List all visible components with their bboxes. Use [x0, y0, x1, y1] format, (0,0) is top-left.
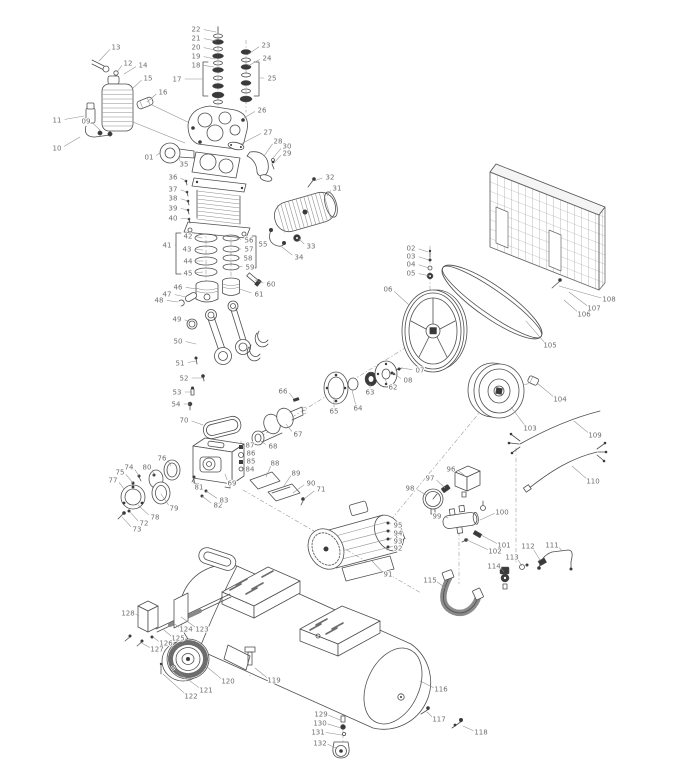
- part-number-29: 29: [283, 149, 292, 157]
- leader-line-12: [117, 66, 122, 72]
- leader-line-06: [394, 291, 409, 305]
- part-number-97: 97: [426, 474, 435, 482]
- motor-pulley: [468, 363, 539, 418]
- piston-small: [223, 278, 240, 296]
- part-number-89: 89: [292, 469, 301, 477]
- leader-line-118: [463, 726, 473, 731]
- part-number-07: 07: [416, 366, 425, 374]
- part-number-129: 129: [314, 710, 327, 718]
- part-number-117: 117: [432, 715, 445, 723]
- part-number-131: 131: [311, 728, 324, 736]
- leader-line-77: [119, 483, 124, 489]
- leader-line-75: [126, 475, 133, 483]
- leader-line-03: [419, 257, 429, 260]
- part-number-27: 27: [264, 128, 273, 136]
- piston-hardware: [179, 272, 262, 329]
- part-number-118: 118: [474, 728, 487, 736]
- part-number-21: 21: [192, 34, 201, 42]
- part-number-28: 28: [274, 137, 283, 145]
- leader-line-106: [564, 300, 577, 312]
- part-number-103: 103: [523, 424, 536, 432]
- leader-line-18: [204, 65, 214, 67]
- part-number-78: 78: [151, 513, 160, 521]
- leader-line-109: [574, 421, 588, 433]
- part-number-102: 102: [488, 547, 501, 555]
- part-number-112: 112: [521, 542, 534, 550]
- part-number-57: 57: [245, 245, 254, 253]
- part-number-26: 26: [258, 106, 267, 114]
- part-number-58: 58: [244, 254, 253, 262]
- leader-line-103: [511, 407, 525, 425]
- diagram-artwork: 0102030405060708091011121314151617181920…: [0, 0, 686, 768]
- part-number-52: 52: [180, 374, 189, 382]
- part-number-63: 63: [366, 388, 375, 396]
- part-number-20: 20: [192, 43, 201, 51]
- part-number-67: 67: [294, 430, 303, 438]
- leader-line-34: [282, 247, 292, 255]
- leader-line-125: [164, 630, 171, 636]
- leader-line-126: [153, 637, 159, 641]
- part-number-111: 111: [545, 541, 558, 549]
- leader-line-111: [559, 547, 562, 551]
- part-number-39: 39: [169, 204, 178, 212]
- part-number-01: 01: [145, 153, 154, 161]
- part-number-69: 69: [228, 479, 237, 487]
- part-number-24: 24: [263, 54, 272, 62]
- part-number-115: 115: [423, 576, 436, 584]
- part-number-10: 10: [53, 144, 62, 152]
- leader-line-42: [196, 237, 202, 238]
- part-number-55: 55: [259, 240, 268, 248]
- part-number-56: 56: [245, 236, 254, 244]
- part-number-62: 62: [389, 383, 398, 391]
- leader-line-36: [181, 178, 186, 181]
- part-number-42: 42: [184, 232, 193, 240]
- part-number-32: 32: [326, 173, 335, 181]
- part-number-75: 75: [116, 468, 125, 476]
- leader-line-13: [99, 50, 110, 61]
- part-number-50: 50: [174, 337, 183, 345]
- part-number-119: 119: [267, 676, 280, 684]
- leader-line-47: [175, 295, 186, 297]
- electrical-box: [125, 601, 158, 641]
- part-number-03: 03: [407, 252, 416, 260]
- part-number-33: 33: [307, 242, 316, 250]
- part-number-44: 44: [184, 257, 193, 265]
- part-number-66: 66: [279, 387, 288, 395]
- grille-panel: [490, 164, 605, 290]
- part-number-18: 18: [192, 61, 201, 69]
- part-number-37: 37: [169, 185, 178, 193]
- part-number-34: 34: [295, 253, 304, 261]
- part-number-79: 79: [170, 504, 179, 512]
- part-number-104: 104: [553, 395, 567, 403]
- part-number-51: 51: [176, 359, 185, 367]
- leader-line-29: [274, 155, 281, 163]
- leader-line-98: [417, 490, 426, 495]
- exploded-parts-diagram: 0102030405060708091011121314151617181920…: [0, 0, 686, 768]
- leader-line-97: [437, 480, 445, 488]
- leader-line-46: [186, 287, 197, 289]
- part-number-130: 130: [313, 719, 326, 727]
- leader-line-43: [195, 249, 203, 250]
- part-number-113: 113: [505, 553, 518, 561]
- part-number-49: 49: [173, 315, 182, 323]
- part-number-76: 76: [158, 454, 167, 462]
- part-number-96: 96: [447, 465, 456, 473]
- part-number-35: 35: [180, 160, 189, 168]
- part-number-15: 15: [144, 74, 153, 82]
- leader-line-48: [167, 300, 178, 302]
- part-number-110: 110: [586, 477, 599, 485]
- leader-line-51: [188, 361, 196, 363]
- part-number-53: 53: [173, 388, 182, 396]
- part-number-68: 68: [269, 442, 278, 450]
- part-number-114: 114: [487, 562, 501, 570]
- part-number-122: 122: [184, 692, 197, 700]
- cylinder: [184, 178, 250, 238]
- part-number-128: 128: [121, 609, 134, 617]
- part-number-98: 98: [406, 484, 415, 492]
- cylinder-head: [188, 106, 248, 148]
- leader-line-117: [427, 712, 432, 717]
- part-number-99: 99: [433, 512, 442, 520]
- part-number-36: 36: [169, 173, 178, 181]
- part-number-64: 64: [354, 404, 363, 412]
- leader-line-100: [480, 513, 494, 520]
- part-number-48: 48: [155, 296, 164, 304]
- part-number-23: 23: [262, 41, 271, 49]
- intake-elbow: [247, 152, 275, 183]
- part-number-14: 14: [139, 61, 148, 69]
- part-number-31: 31: [333, 184, 342, 192]
- leader-line-129: [329, 715, 340, 720]
- part-number-83: 83: [220, 496, 229, 504]
- part-number-132: 132: [313, 739, 326, 747]
- part-number-123: 123: [195, 625, 208, 633]
- air-filter-assembly: [85, 60, 196, 143]
- leader-line-107: [569, 292, 587, 306]
- valve-stacks: [203, 27, 259, 104]
- part-number-05: 05: [407, 269, 416, 277]
- leader-line-110: [572, 466, 586, 479]
- leader-line-24: [248, 60, 260, 66]
- part-number-54: 54: [172, 400, 181, 408]
- flex-hose: [442, 570, 484, 613]
- part-number-09: 09: [82, 117, 91, 125]
- part-number-19: 19: [192, 52, 201, 60]
- leader-line-72: [130, 512, 138, 521]
- part-number-92: 92: [394, 544, 403, 552]
- part-number-94: 94: [394, 529, 403, 537]
- part-number-65: 65: [330, 407, 339, 415]
- leader-line-22: [204, 30, 216, 32]
- part-number-61: 61: [255, 290, 264, 298]
- leader-line-50: [186, 342, 196, 344]
- part-number-95: 95: [394, 521, 403, 529]
- part-number-121: 121: [199, 686, 212, 694]
- part-number-17: 17: [173, 75, 182, 83]
- leader-line-130: [328, 724, 341, 728]
- muffler: [271, 189, 340, 235]
- connecting-rods: [188, 301, 268, 410]
- part-number-107: 107: [587, 304, 600, 312]
- breather-boss: [160, 143, 194, 163]
- part-number-124: 124: [179, 625, 193, 633]
- part-number-45: 45: [184, 269, 193, 277]
- part-number-22: 22: [192, 25, 201, 33]
- part-number-25: 25: [268, 74, 277, 82]
- part-number-81: 81: [195, 483, 204, 491]
- part-number-47: 47: [163, 290, 172, 298]
- leader-line-82: [202, 496, 211, 503]
- caster-assembly: [333, 716, 349, 758]
- part-number-74: 74: [125, 463, 134, 471]
- part-number-60: 60: [267, 280, 276, 288]
- part-number-116: 116: [434, 685, 448, 693]
- part-number-73: 73: [133, 525, 142, 533]
- leader-line-71: [304, 491, 314, 499]
- leader-line-73: [122, 517, 131, 527]
- part-number-06: 06: [384, 285, 393, 293]
- part-number-43: 43: [183, 245, 192, 253]
- leader-line-07: [401, 368, 412, 370]
- part-number-38: 38: [169, 194, 178, 202]
- leader-line-38: [181, 199, 188, 201]
- part-number-90: 90: [307, 479, 316, 487]
- leader-line-120: [207, 667, 221, 679]
- piston-large: [196, 281, 218, 302]
- part-number-11: 11: [53, 116, 62, 124]
- part-number-59: 59: [246, 263, 255, 271]
- leader-line-02: [419, 249, 428, 252]
- leader-line-78: [138, 505, 148, 515]
- part-number-70: 70: [180, 416, 189, 424]
- part-number-46: 46: [174, 283, 183, 291]
- leader-line-45: [196, 272, 203, 273]
- leader-line-10: [64, 137, 80, 146]
- part-number-109: 109: [588, 431, 601, 439]
- part-number-08: 08: [404, 376, 413, 384]
- part-number-108: 108: [602, 295, 615, 303]
- leader-line-104: [537, 383, 553, 397]
- part-number-105: 105: [543, 341, 556, 349]
- part-number-100: 100: [495, 508, 508, 516]
- part-number-84: 84: [246, 465, 255, 473]
- leader-line-83: [206, 491, 217, 498]
- leader-line-15: [132, 80, 141, 89]
- part-number-125: 125: [171, 634, 184, 642]
- part-number-02: 02: [407, 244, 416, 252]
- part-number-77: 77: [109, 476, 118, 484]
- part-number-41: 41: [163, 241, 172, 249]
- part-number-85: 85: [247, 457, 256, 465]
- part-number-93: 93: [394, 537, 403, 545]
- part-number-71: 71: [317, 485, 326, 493]
- leader-line-74: [135, 470, 139, 476]
- part-number-127: 127: [150, 645, 163, 653]
- leader-line-131: [326, 732, 342, 735]
- leader-line-70: [192, 421, 203, 425]
- part-number-91: 91: [384, 570, 393, 578]
- part-number-13: 13: [112, 43, 121, 51]
- leader-line-37: [181, 190, 187, 192]
- leader-line-33: [299, 239, 304, 244]
- leader-line-14: [124, 67, 136, 74]
- leader-line-04: [419, 265, 429, 268]
- leader-line-26: [244, 112, 255, 118]
- leader-line-09: [93, 123, 100, 130]
- part-number-30: 30: [283, 142, 292, 150]
- piston-rings-left: [176, 233, 217, 276]
- part-number-120: 120: [221, 677, 234, 685]
- leader-line-101: [481, 535, 497, 543]
- leader-line-102: [467, 540, 488, 550]
- part-number-80: 80: [143, 463, 152, 471]
- part-number-16: 16: [159, 88, 168, 96]
- leader-line-28: [264, 144, 273, 156]
- leader-line-64: [352, 390, 355, 404]
- part-number-87: 87: [246, 441, 255, 449]
- part-number-04: 04: [407, 260, 416, 268]
- leader-line-66: [289, 393, 294, 399]
- part-number-40: 40: [169, 214, 178, 222]
- leader-line-127: [140, 642, 150, 647]
- leader-line-61: [240, 289, 251, 293]
- leader-line-112: [533, 549, 540, 560]
- part-number-12: 12: [124, 59, 133, 67]
- crankcase-gasket: [202, 415, 243, 441]
- part-number-86: 86: [247, 449, 256, 457]
- part-number-88: 88: [271, 459, 280, 467]
